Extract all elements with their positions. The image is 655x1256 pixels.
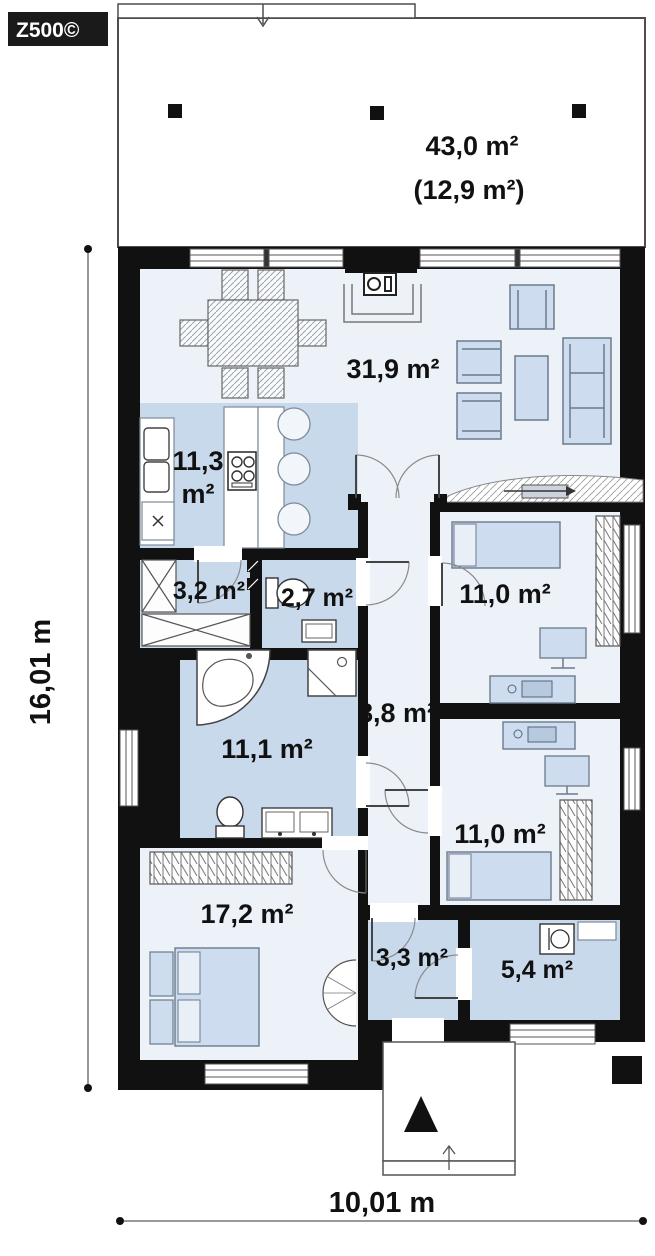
counter-icon xyxy=(578,922,616,940)
terrace-pillar xyxy=(168,104,182,118)
brand-logo-text: Z500© xyxy=(16,19,80,42)
bedroom1-area-label: 11,0 m² xyxy=(459,579,551,609)
nightstand-icon xyxy=(150,952,173,996)
dimension-width: 10,01 m xyxy=(116,1187,647,1225)
coffee-table-icon xyxy=(515,356,548,420)
dining-chair xyxy=(298,320,326,346)
terrace-pillar xyxy=(572,104,586,118)
kitchen-area-label-line2: m² xyxy=(182,479,215,509)
nightstand-icon xyxy=(150,1000,173,1044)
computer-icon xyxy=(522,681,552,697)
kitchen-fittings xyxy=(140,407,310,548)
vestibule-area-label: 3,3 m² xyxy=(376,944,448,972)
armchair-icon xyxy=(457,341,501,383)
pillow-icon xyxy=(178,1000,200,1042)
wardrobe-icon xyxy=(596,516,620,646)
pillow-icon xyxy=(454,524,476,566)
height-dimension-label: 16,01 m xyxy=(25,619,57,725)
dining-chair xyxy=(258,270,284,300)
window-top-right xyxy=(420,249,620,267)
wall-stub xyxy=(612,1056,642,1084)
pantry-area-label: 3,2 m² xyxy=(173,577,245,605)
floor-plan-canvas: Z500© 43,0 m² (12,9 m²) xyxy=(0,0,655,1256)
bedroom2-area-label: 11,0 m² xyxy=(454,819,546,849)
dining-chair xyxy=(180,320,208,346)
monitor-icon xyxy=(545,756,589,786)
roof-edge xyxy=(118,4,415,18)
master-area-label: 17,2 m² xyxy=(200,899,293,929)
wardrobe-icon xyxy=(150,852,292,884)
armchair-icon xyxy=(510,285,554,329)
entrance-porch xyxy=(383,1042,515,1175)
brand-logo: Z500© xyxy=(8,12,108,46)
window-master-bedroom xyxy=(205,1064,308,1084)
terrace-covered-area-label: (12,9 m²) xyxy=(413,175,524,205)
dimension-height: 16,01 m xyxy=(25,245,92,1092)
toilet-icon xyxy=(266,578,278,608)
shower-icon xyxy=(308,650,356,696)
window-bedroom2 xyxy=(624,748,640,810)
wardrobe-icon xyxy=(560,800,592,900)
window-utility xyxy=(510,1024,595,1044)
bar-stool-icon xyxy=(278,503,310,535)
armchair-icon xyxy=(457,393,501,439)
window-top-left xyxy=(190,249,343,267)
bathroom-area-label: 11,1 m² xyxy=(221,734,313,764)
floor-plan: Z500© 43,0 m² (12,9 m²) xyxy=(0,0,655,1256)
bar-stool-icon xyxy=(278,408,310,440)
dining-chair xyxy=(222,270,248,300)
width-dimension-label: 10,01 m xyxy=(329,1187,435,1219)
sink-icon xyxy=(144,428,169,460)
window-bathroom xyxy=(120,730,138,806)
toilet-icon xyxy=(217,797,243,827)
washbasin-icon xyxy=(302,620,336,642)
computer-icon xyxy=(528,727,556,742)
dining-chair xyxy=(222,368,248,398)
bar-stool-icon xyxy=(278,453,310,485)
dining-chair xyxy=(258,368,284,398)
terrace: 43,0 m² (12,9 m²) xyxy=(118,4,645,247)
terrace-area-label: 43,0 m² xyxy=(425,131,518,161)
sink-icon xyxy=(144,462,169,492)
monitor-icon xyxy=(540,628,586,658)
hallway-area-label: 8,8 m² xyxy=(358,698,436,728)
living-area-label: 31,9 m² xyxy=(346,354,439,384)
wc-area-label: 2,7 m² xyxy=(281,584,353,612)
kitchen-area-label-line1: 11,3 xyxy=(172,446,223,476)
pillow-icon xyxy=(178,952,200,994)
window-bedroom1 xyxy=(624,525,640,633)
utility-area-label: 5,4 m² xyxy=(501,956,573,984)
pillow-icon xyxy=(449,854,471,898)
terrace-pillar xyxy=(370,106,384,120)
